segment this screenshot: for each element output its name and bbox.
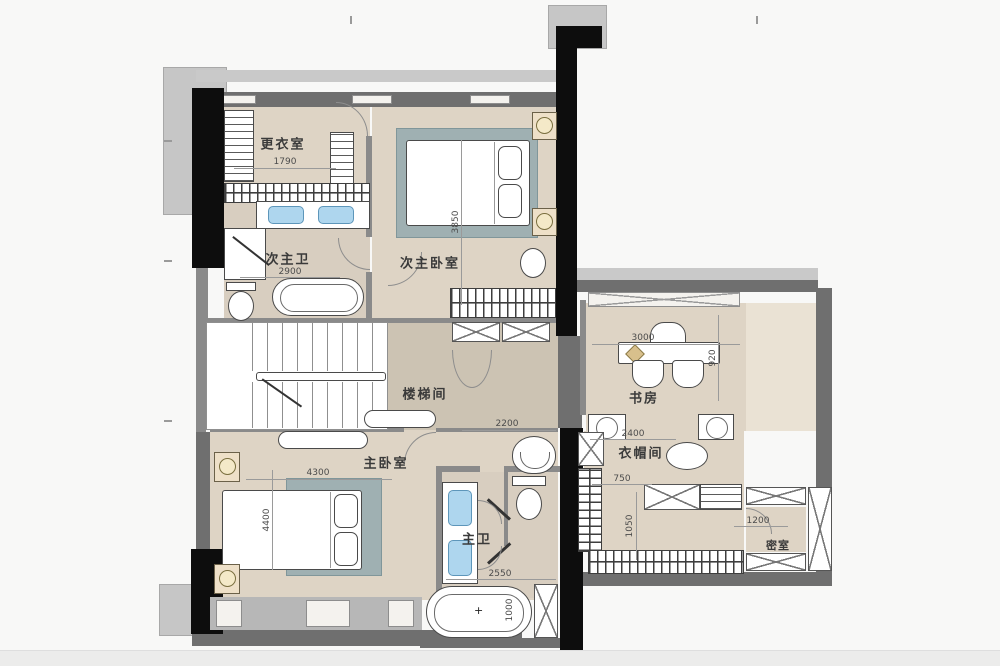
lamp-icon — [536, 213, 553, 230]
dim-line — [734, 526, 788, 527]
island-cabinet-shelves — [700, 484, 742, 510]
dim-line — [636, 492, 637, 560]
sbed-wardrobe-rail — [450, 288, 556, 318]
study-floor-recess — [746, 303, 816, 431]
dim-line — [592, 484, 652, 485]
pillow — [334, 494, 358, 528]
dim-master-depth: 4400 — [262, 509, 272, 532]
chair — [632, 360, 664, 388]
dim-line — [590, 439, 676, 440]
dim-hall-width: 2200 — [496, 419, 519, 429]
master-bath-partition — [504, 472, 508, 546]
room-label-dressing: 更衣室 — [260, 134, 305, 153]
pillow — [334, 532, 358, 566]
toilet-tank — [226, 282, 256, 291]
dim-study-width: 3000 — [632, 333, 655, 343]
dim-line — [234, 168, 336, 169]
bottom-wall-right — [420, 638, 560, 648]
break-tick — [756, 16, 758, 24]
top-wall-vent-window — [352, 95, 392, 104]
cloakroom-hanger-column — [578, 468, 602, 552]
dim-line — [240, 277, 340, 278]
pillow — [498, 146, 522, 180]
toilet-icon — [520, 248, 546, 278]
bathtub-inner — [280, 284, 358, 312]
stairs-left-wall — [196, 322, 206, 432]
study-outer-wall-light — [568, 268, 818, 280]
curtain-panel — [388, 600, 414, 627]
dim-dressing-width: 1790 — [274, 157, 297, 167]
dim-line — [461, 140, 462, 305]
dim-sbath-width: 2900 — [279, 267, 302, 277]
drain-cross-icon: + — [474, 606, 484, 616]
chair — [672, 360, 704, 388]
dressing-closet-left — [224, 110, 254, 182]
sink-icon — [448, 490, 472, 526]
room-label-study: 书房 — [629, 388, 659, 407]
storage-crossbox — [808, 487, 832, 571]
sbath-right-wall-lower — [366, 272, 372, 323]
storage-crossbox — [746, 487, 806, 505]
room-label-stairwell: 楼梯间 — [402, 384, 447, 403]
storage-crossbox — [534, 584, 558, 638]
shower — [224, 228, 266, 280]
bed-headboard-line — [494, 142, 495, 224]
pillow — [498, 184, 522, 218]
storage-crossbox — [746, 553, 806, 571]
island-cabinet-cross — [644, 484, 700, 510]
dim-line — [462, 430, 556, 431]
lamp-icon — [536, 117, 553, 134]
hall-study-wall — [558, 336, 582, 428]
stairs-treads-upper — [252, 323, 386, 371]
curtain-panel — [306, 600, 350, 627]
curtain-panel — [216, 600, 242, 627]
dim-line — [246, 479, 392, 480]
toilet-tank — [512, 476, 546, 486]
dim-line — [272, 470, 273, 570]
room-label-second-master-bath: 次主卫 — [265, 249, 310, 268]
sink-icon — [318, 206, 354, 224]
dim-cloak-width: 2400 — [622, 429, 645, 439]
room-label-master-bath: 主卫 — [462, 529, 492, 548]
dim-mbath-width: 2550 — [489, 569, 512, 579]
dim-cloak-opening: 750 — [613, 474, 630, 484]
room-label-second-master-bedroom: 次主卧室 — [400, 253, 460, 272]
lamp-icon — [219, 458, 236, 475]
dim-line — [718, 315, 719, 401]
master-bath-top-wall-left — [436, 466, 480, 472]
study-window — [588, 292, 740, 307]
pouf — [666, 442, 708, 470]
toilet-icon — [516, 488, 542, 520]
cloakroom-bottom-wall — [580, 572, 832, 586]
top-outer-wall-light — [196, 70, 564, 82]
room-label-cloakroom: 衣帽间 — [618, 443, 663, 462]
storage-crossbox — [502, 322, 550, 342]
break-tick — [164, 140, 172, 142]
dim-study-depth: 920 — [708, 349, 718, 366]
dim-line — [446, 579, 556, 580]
top-wall-vent-window — [222, 95, 256, 104]
black-wall-right-of-sbed — [556, 44, 577, 336]
left-wall-segment — [196, 268, 208, 323]
floor-plan-canvas: + 更衣室 次主卫 次主卧室 楼梯间 主卧室 主卫 书房 衣帽间 密室 1790… — [0, 0, 1000, 666]
study-left-wall — [580, 300, 586, 415]
toilet-icon — [228, 291, 254, 321]
console-cabinet — [278, 431, 368, 449]
lamp-icon — [219, 570, 236, 587]
stairs-handrail — [256, 372, 386, 381]
dressing-hanger-rail — [224, 183, 370, 203]
black-wall-left-upper — [192, 88, 224, 268]
bottom-margin-strip — [0, 650, 1000, 666]
break-tick — [350, 16, 352, 24]
dim-mbath-tub: 1000 — [505, 599, 515, 622]
break-tick — [164, 420, 172, 422]
room-label-secret-room: 密室 — [766, 537, 790, 553]
console-cabinet — [364, 410, 436, 428]
dim-cloak-depth: 1050 — [625, 515, 635, 538]
break-tick — [164, 260, 172, 262]
washer-drum-icon — [706, 417, 728, 439]
room-label-master-bedroom: 主卧室 — [363, 453, 408, 472]
top-wall-vent-window — [470, 95, 510, 104]
dim-secret-width: 1200 — [747, 516, 770, 526]
storage-crossbox — [578, 432, 604, 466]
study-top-wall — [565, 280, 818, 292]
dim-sbed-depth: 3850 — [451, 211, 461, 234]
cloakroom-hanger-rail — [588, 550, 744, 574]
storage-crossbox — [452, 322, 500, 342]
dim-master-width: 4300 — [307, 468, 330, 478]
sink-icon — [268, 206, 304, 224]
bed-headboard-line — [330, 492, 331, 568]
